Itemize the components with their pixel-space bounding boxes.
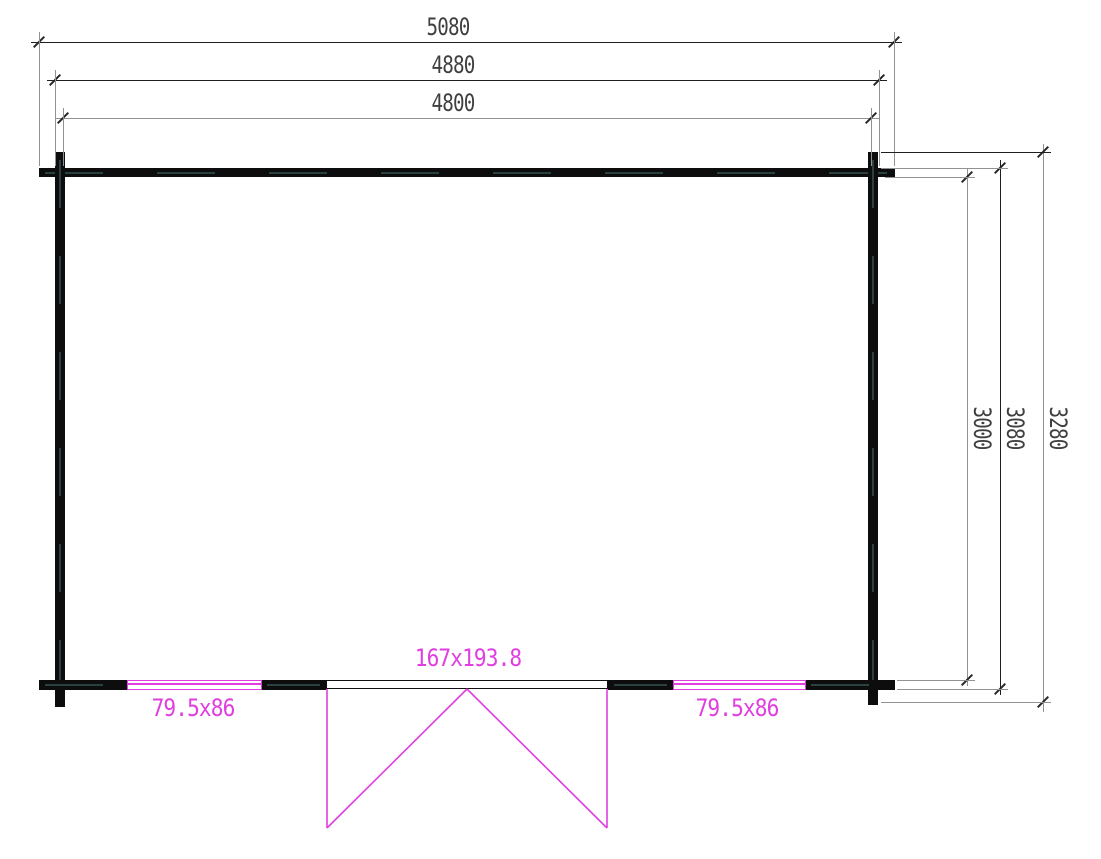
dim-label-log-end-width: 4880: [431, 51, 474, 79]
dim-label-overall-width: 5080: [426, 13, 469, 41]
wall-bottom-segment: [608, 680, 673, 690]
dim-label-log-end-depth: 3080: [1001, 406, 1029, 449]
door-size-label: 167x193.8: [415, 644, 522, 672]
door-frame: [326, 680, 608, 689]
wall-top: [39, 168, 895, 177]
dim-line-log-end-width: [47, 80, 887, 81]
extension-line: [63, 108, 64, 166]
floor-plan-drawing: 79.5x86 79.5x86 167x193.8 5080 4880 4800…: [0, 0, 1101, 859]
window-left-size-label: 79.5x86: [152, 694, 235, 722]
wall-bottom-segment: [261, 680, 326, 690]
window-right: [673, 680, 806, 690]
extension-line: [897, 689, 1008, 690]
dim-line-wall-width: [55, 118, 879, 119]
dim-label-wall-depth: 3000: [968, 406, 996, 449]
wall-bottom-segment: [39, 680, 127, 690]
wall-left: [55, 152, 65, 707]
dim-line-overall-width: [31, 42, 902, 43]
window-right-size-label: 79.5x86: [696, 694, 779, 722]
dim-label-overall-depth: 3280: [1044, 406, 1072, 449]
extension-line: [879, 70, 880, 166]
extension-line: [39, 32, 40, 166]
wall-right: [868, 152, 878, 705]
door-swing-icon: [326, 689, 608, 830]
window-left: [127, 680, 262, 690]
extension-line: [897, 680, 975, 681]
extension-line: [871, 108, 872, 166]
extension-line: [55, 70, 56, 166]
extension-line: [894, 32, 895, 166]
extension-line: [881, 152, 1051, 153]
dim-label-wall-width: 4800: [431, 89, 474, 117]
wall-bottom-segment: [805, 680, 895, 690]
extension-line: [881, 702, 1051, 703]
extension-line: [881, 168, 1008, 169]
extension-line: [885, 177, 975, 178]
